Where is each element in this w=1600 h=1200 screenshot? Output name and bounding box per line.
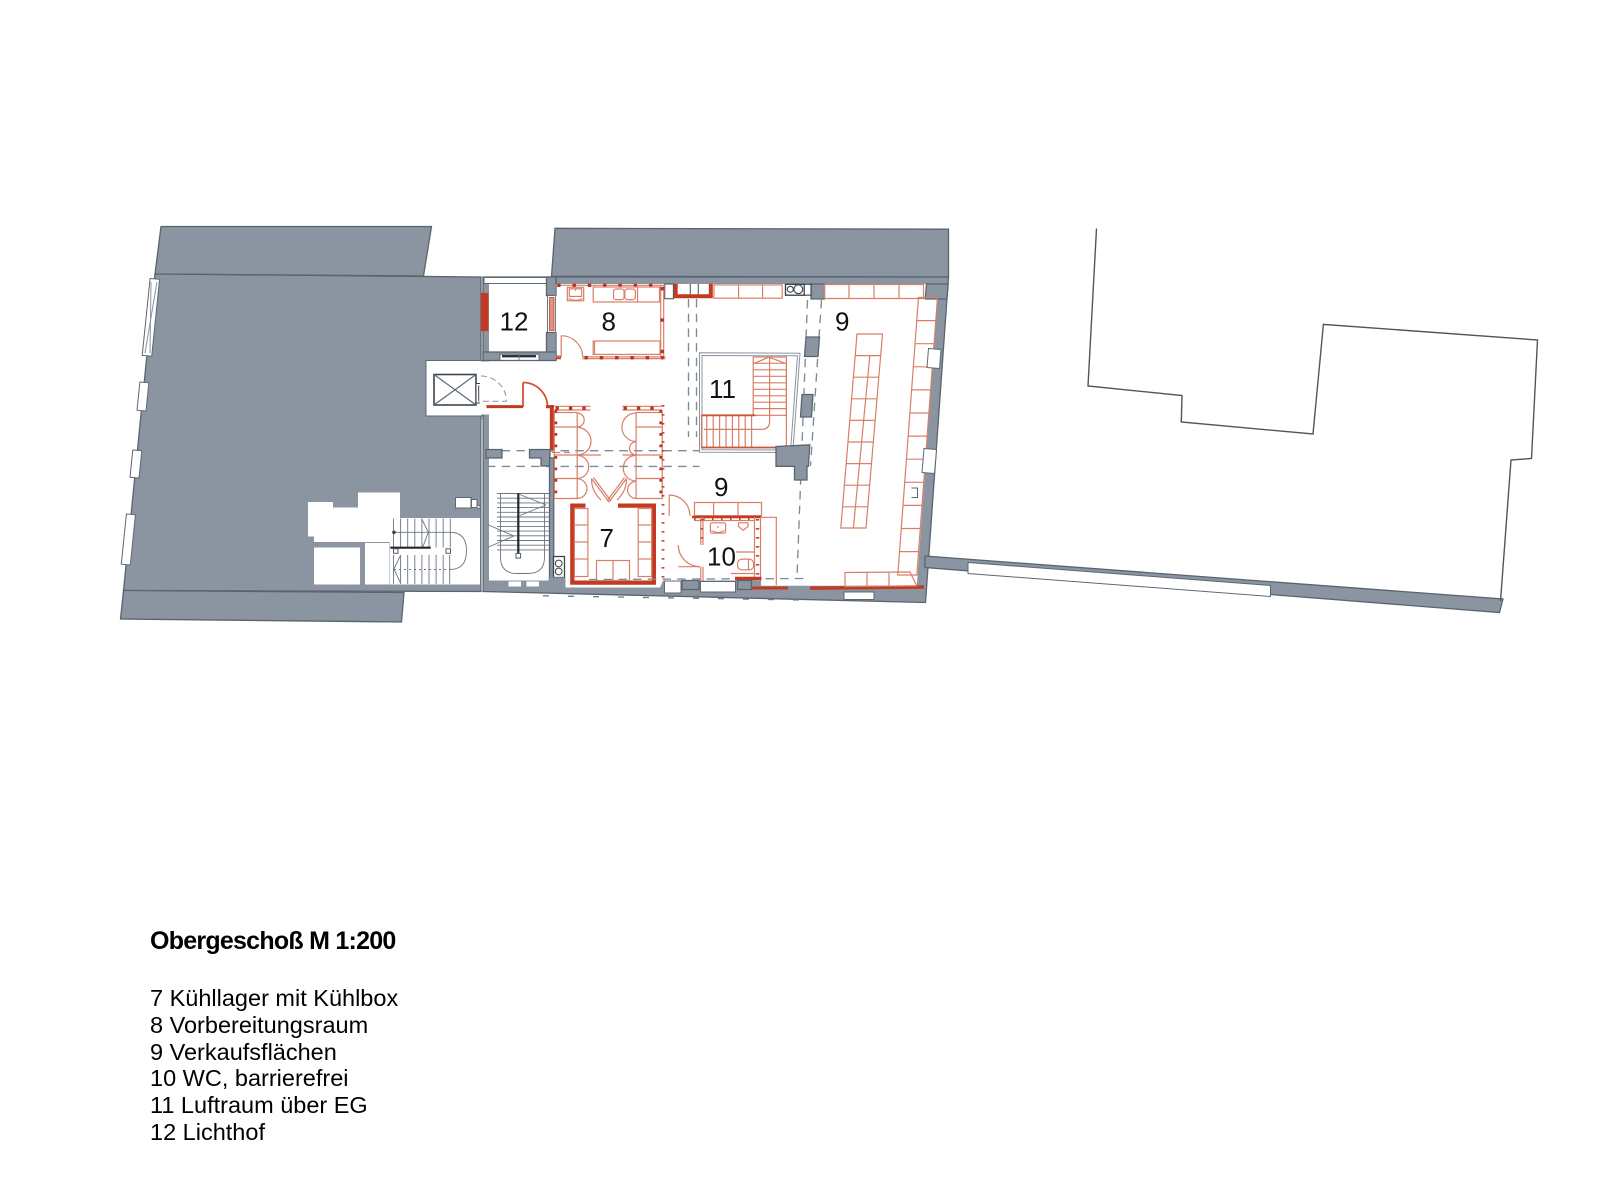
svg-text:7: 7 (600, 523, 614, 553)
svg-text:9: 9 (714, 472, 728, 502)
svg-text:9: 9 (835, 307, 849, 337)
svg-text:12: 12 (500, 307, 529, 337)
svg-text:8: 8 (602, 307, 616, 337)
svg-text:11: 11 (709, 374, 736, 404)
svg-text:10: 10 (707, 542, 736, 572)
